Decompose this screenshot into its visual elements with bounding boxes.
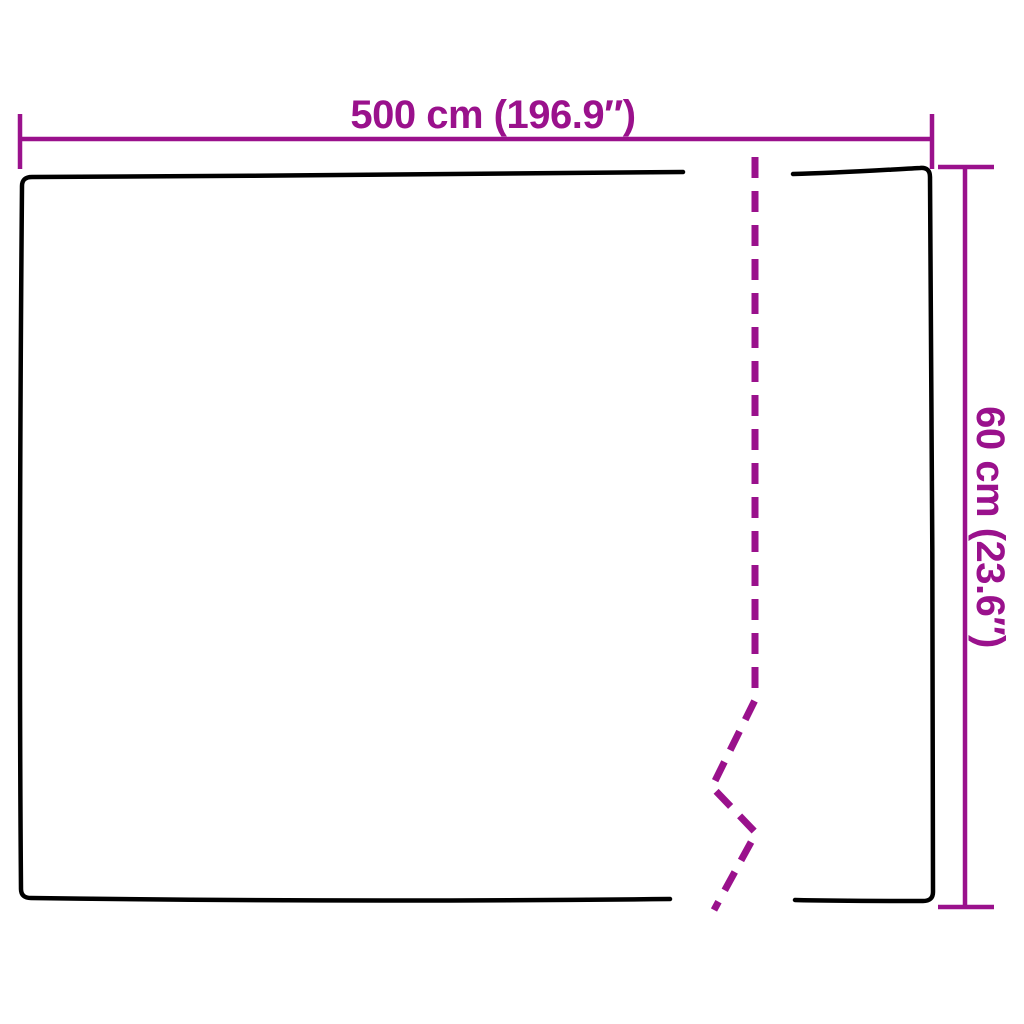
product-outline — [20, 168, 933, 901]
product-dimension-diagram: 500 cm (196.9″) 60 cm (23.6″) — [0, 0, 1024, 1024]
height-dimension: 60 cm (23.6″) — [938, 167, 1012, 907]
product-diagram-canvas: 500 cm (196.9″) 60 cm (23.6″) — [0, 0, 1024, 1024]
width-dimension-label: 500 cm (196.9″) — [350, 93, 635, 137]
product-outline-right-section — [793, 168, 933, 901]
height-dimension-label: 60 cm (23.6″) — [968, 406, 1012, 648]
product-outline-left-section — [20, 172, 683, 900]
fold-dashed-line — [712, 157, 756, 910]
width-dimension: 500 cm (196.9″) — [20, 93, 932, 169]
